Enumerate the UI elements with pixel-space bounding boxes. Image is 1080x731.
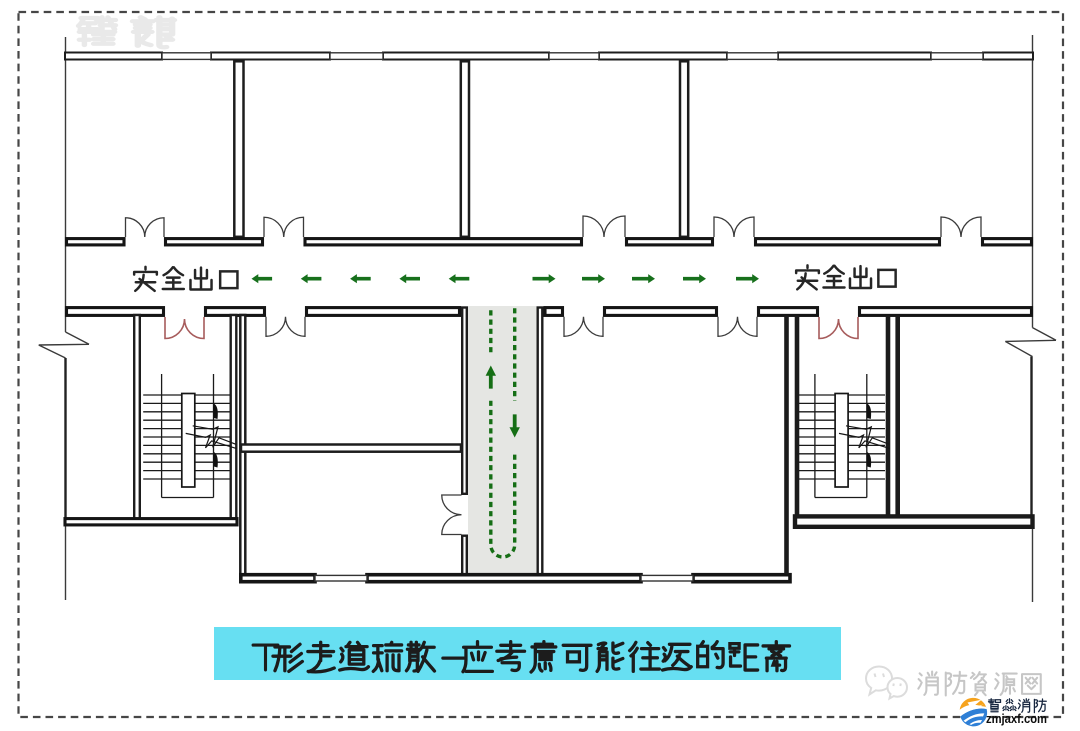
svg-text:zmjaxf.com: zmjaxf.com [986, 711, 1047, 726]
